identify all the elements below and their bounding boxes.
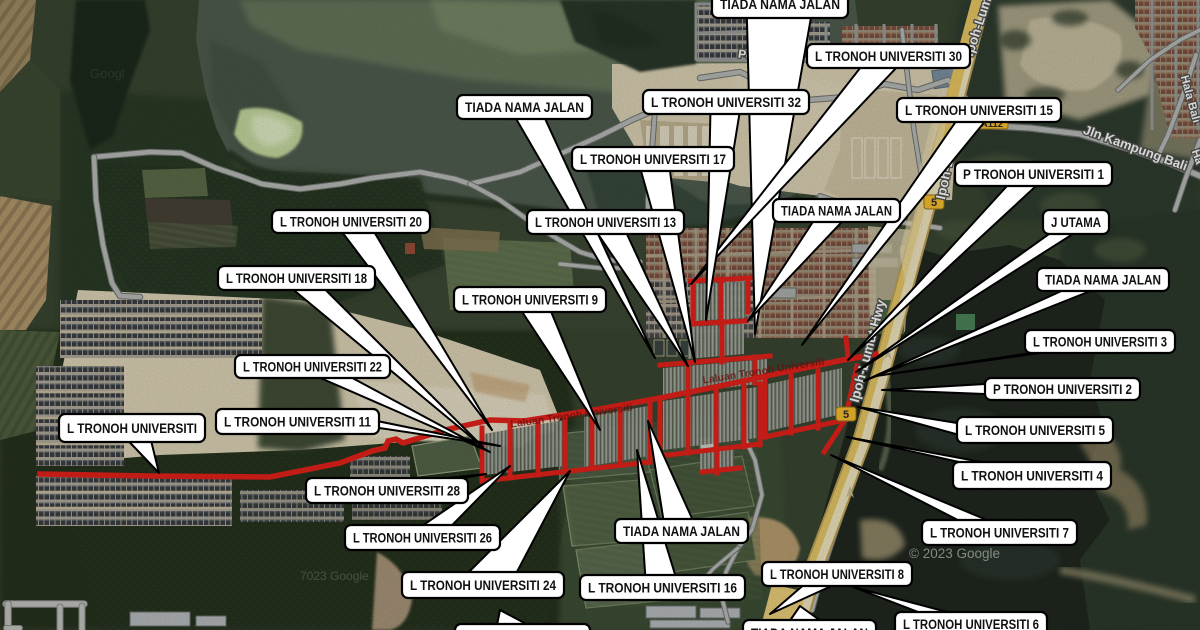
svg-text:L TRONOH UNIVERSITI 20: L TRONOH UNIVERSITI 20 — [280, 215, 422, 231]
svg-text:L TRONOH UNIVERSITI 18: L TRONOH UNIVERSITI 18 — [226, 271, 367, 287]
svg-text:TIADA NAMA JALAN: TIADA NAMA JALAN — [1045, 273, 1161, 289]
svg-text:J UTAMA: J UTAMA — [1051, 215, 1101, 231]
svg-text:L TRONOH UNIVERSITI 30: L TRONOH UNIVERSITI 30 — [815, 49, 962, 65]
svg-text:L TRONOH UNIVERSITI 15: L TRONOH UNIVERSITI 15 — [905, 103, 1053, 119]
svg-text:L TRONOH UNIVERSITI 24: L TRONOH UNIVERSITI 24 — [410, 578, 556, 594]
svg-text:TIADA NAMA JALAN: TIADA NAMA JALAN — [623, 524, 740, 540]
svg-text:L TRONOH UNIVERSITI 8: L TRONOH UNIVERSITI 8 — [770, 567, 904, 583]
svg-text:L TRONOH UNIVERSITI 13: L TRONOH UNIVERSITI 13 — [535, 215, 676, 231]
svg-text:L TRONOH UNIVERSITI: L TRONOH UNIVERSITI — [67, 421, 197, 437]
svg-text:L TRONOH UNIVERSITI 4: L TRONOH UNIVERSITI 4 — [961, 469, 1103, 485]
svg-text:L TRONOH UNIVERSITI 5: L TRONOH UNIVERSITI 5 — [965, 423, 1105, 439]
svg-text:L TRONOH UNIVERSITI 32: L TRONOH UNIVERSITI 32 — [651, 95, 801, 111]
svg-text:L TRONOH UNIVERSITI 28: L TRONOH UNIVERSITI 28 — [314, 484, 460, 500]
svg-text:TIADA NAMA JALAN: TIADA NAMA JALAN — [781, 204, 892, 220]
svg-text:L TRONOH UNIVERSITI 16: L TRONOH UNIVERSITI 16 — [588, 581, 737, 597]
svg-text:L TRONOH UNIVERSITI 17: L TRONOH UNIVERSITI 17 — [580, 152, 726, 168]
svg-text:7023 Google: 7023 Google — [300, 569, 369, 583]
svg-text:L TRONOH UNIVERSITI 26: L TRONOH UNIVERSITI 26 — [353, 531, 492, 547]
svg-text:L TRONOH UNIVERSITI 6: L TRONOH UNIVERSITI 6 — [903, 617, 1039, 630]
svg-text:TIADA NAMA JALAN: TIADA NAMA JALAN — [751, 626, 868, 630]
svg-text:P TRONOH UNIVERSITI 2: P TRONOH UNIVERSITI 2 — [993, 382, 1132, 398]
svg-text:TIADA NAMA JALAN: TIADA NAMA JALAN — [465, 100, 584, 116]
svg-text:Googl: Googl — [90, 66, 125, 81]
svg-text:P TRONOH UNIVERSITI 1: P TRONOH UNIVERSITI 1 — [963, 167, 1104, 183]
svg-text:© 2023 Google: © 2023 Google — [909, 546, 1000, 561]
svg-text:L TRONOH UNIVERSITI 22: L TRONOH UNIVERSITI 22 — [243, 360, 382, 376]
svg-text:L TRONOH UNIVERSITI 7: L TRONOH UNIVERSITI 7 — [930, 526, 1069, 542]
svg-text:L TRONOH UNIVERSITI 3: L TRONOH UNIVERSITI 3 — [1033, 335, 1167, 351]
svg-text:TIADA NAMA JALAN: TIADA NAMA JALAN — [720, 0, 840, 13]
svg-text:L TRONOH UNIVERSITI 9: L TRONOH UNIVERSITI 9 — [462, 293, 598, 309]
svg-text:L TRONOH UNIVERSITI 11: L TRONOH UNIVERSITI 11 — [224, 415, 371, 431]
